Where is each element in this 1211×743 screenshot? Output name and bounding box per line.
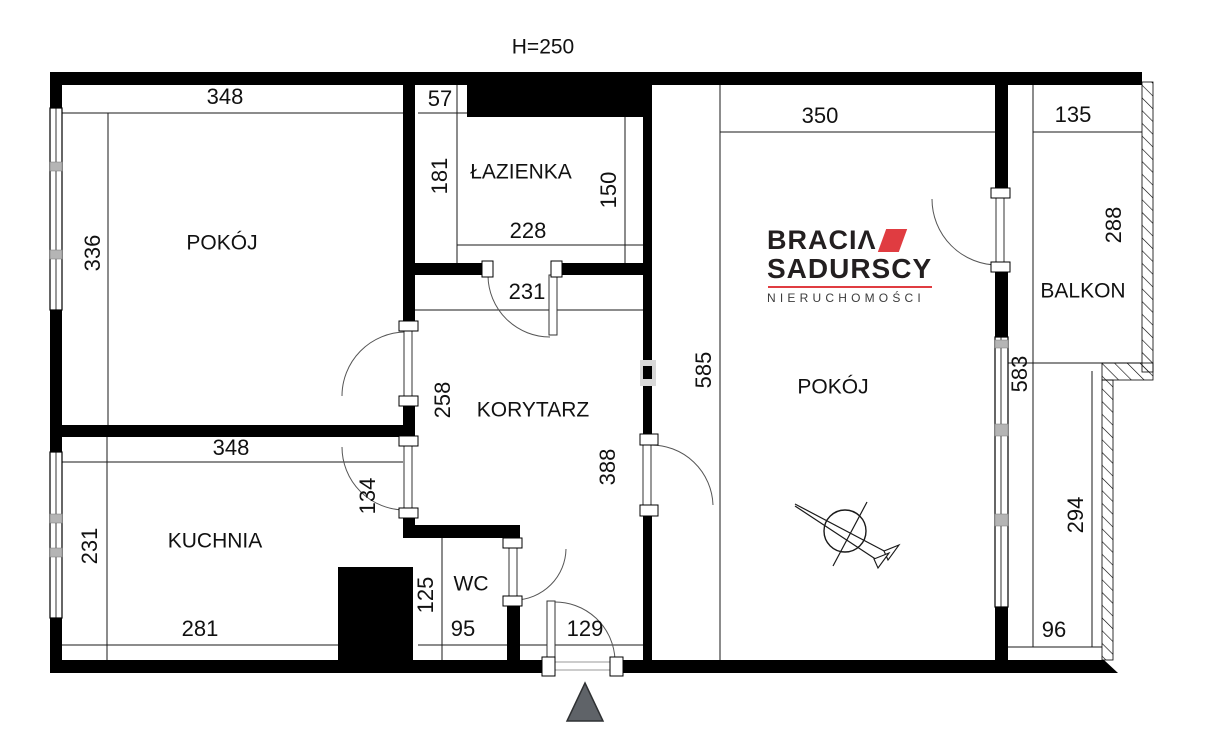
dim-lazienka-150: 150	[598, 172, 620, 209]
dim-top-57: 57	[428, 88, 452, 110]
room-label-pokoj-right: POKÓJ	[797, 377, 868, 398]
dim-korytarz-258: 258	[432, 382, 454, 419]
room-label-kuchnia: KUCHNIA	[168, 531, 263, 552]
window-pokoj-left	[50, 108, 62, 310]
dim-kuchnia-height: 231	[79, 528, 101, 565]
dim-kuchnia-281: 281	[182, 618, 219, 640]
dim-korytarz-388: 388	[597, 449, 619, 486]
dim-right-96: 96	[1042, 619, 1066, 641]
room-label-balkon: BALKON	[1040, 281, 1125, 302]
agency-logo: BRACIΛ SADURSCY NIERUCHOMOŚCI	[767, 227, 947, 305]
entrance-arrow-icon	[567, 683, 603, 721]
dim-pokoj-left-width: 348	[207, 86, 244, 108]
room-label-pokoj-left: POKÓJ	[186, 233, 257, 254]
logo-brand-bottom: SADURSCY	[767, 254, 947, 283]
dim-kuchnia-width: 348	[213, 437, 250, 459]
dim-balkon-135: 135	[1055, 104, 1092, 126]
dim-pokoj-right-585: 585	[693, 352, 715, 389]
dim-right-583: 583	[1009, 356, 1031, 393]
dim-pokoj-right-width: 350	[802, 105, 839, 127]
logo-brand-top: BRACIΛ	[767, 227, 877, 254]
dim-pokoj-left-height: 336	[82, 235, 104, 272]
dim-lazienka-228: 228	[510, 220, 547, 242]
room-label-lazienka: ŁAZIENKA	[470, 162, 572, 183]
plan-height-title: H=250	[512, 37, 574, 58]
shaft-block	[338, 567, 413, 660]
logo-tagline: NIERUCHOMOŚCI	[767, 291, 947, 305]
logo-red-mark-icon	[877, 229, 906, 252]
dim-balkon-288: 288	[1103, 207, 1125, 244]
dim-wc-125: 125	[415, 577, 437, 614]
room-label-korytarz: KORYTARZ	[477, 400, 589, 421]
window-kuchnia	[50, 452, 62, 618]
dim-kuchnia-134: 134	[357, 478, 379, 515]
dim-entry-129: 129	[567, 618, 604, 640]
dim-lazienka-181: 181	[429, 158, 451, 195]
dim-wc-95: 95	[451, 618, 475, 640]
walls-layer	[50, 72, 1142, 673]
hatched-walls	[1102, 82, 1153, 660]
logo-red-underline	[768, 286, 932, 288]
watermark-band	[640, 360, 656, 386]
floor-plan: H=250 POKÓJ ŁAZIENKA KORYTARZ KUCHNIA WC…	[0, 0, 1211, 743]
ceiling-fan-icon	[795, 502, 899, 568]
dim-right-294: 294	[1065, 497, 1087, 534]
dim-korytarz-231: 231	[509, 281, 546, 303]
room-label-wc: WC	[454, 574, 489, 595]
